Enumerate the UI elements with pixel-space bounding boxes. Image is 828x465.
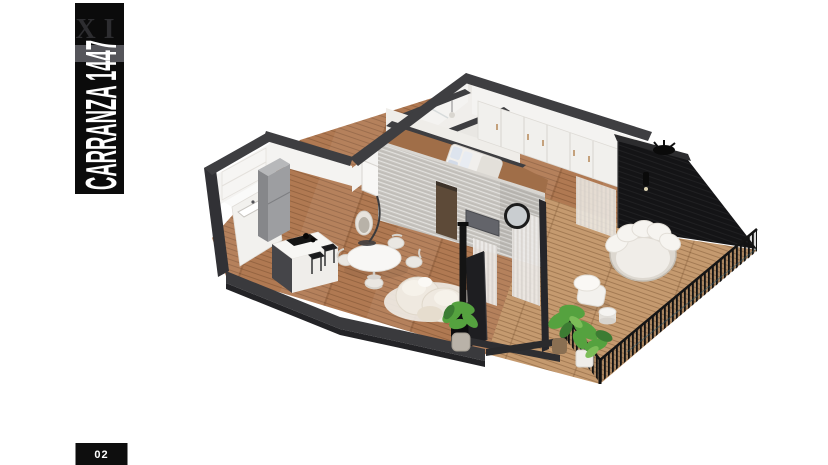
banner: XI CARRANZA 1447 — [75, 3, 126, 194]
page-badge-label: 02 — [94, 449, 108, 461]
page-badge: 02 — [76, 443, 128, 465]
scene: XI CARRANZA 1447 02 — [0, 0, 828, 465]
wall-lamp — [643, 172, 649, 186]
wall-lamp-glow — [644, 187, 648, 191]
page: XI CARRANZA 1447 02 — [0, 0, 828, 465]
dining-table — [347, 245, 401, 272]
side-table — [599, 308, 616, 325]
fridge — [258, 158, 290, 242]
pendant-lamp — [449, 112, 455, 118]
round-mirror — [506, 205, 529, 228]
faucet — [251, 200, 254, 203]
stove-pipe — [460, 224, 467, 310]
partition-panel — [466, 251, 487, 347]
banner-title: CARRANZA 1447 — [77, 40, 126, 190]
hall-door — [362, 160, 379, 197]
